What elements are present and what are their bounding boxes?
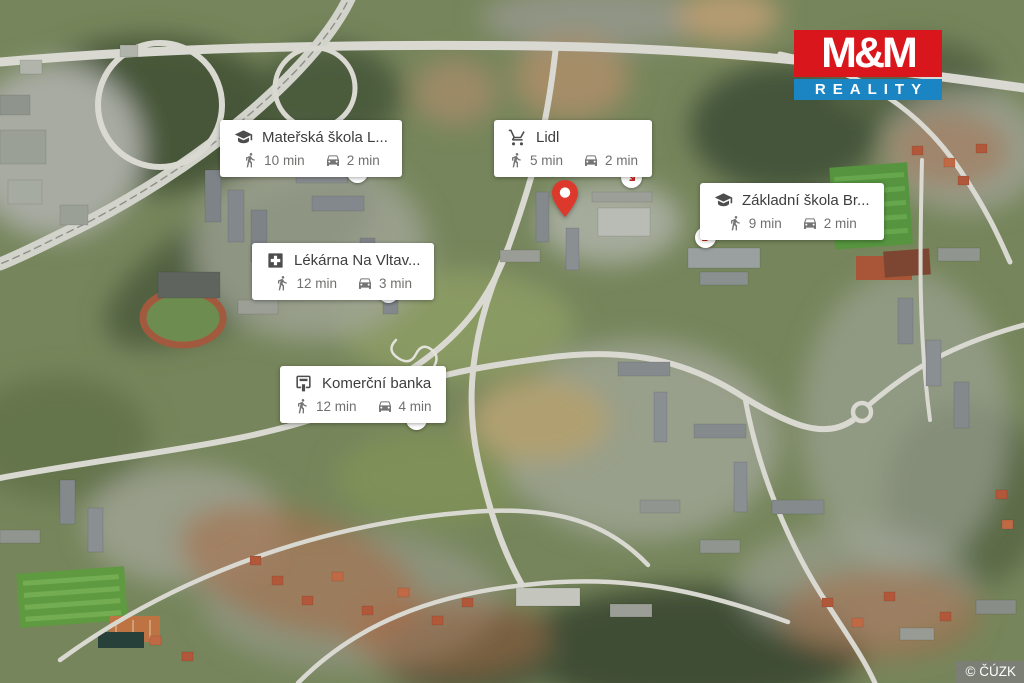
poi-title-row: Lékárna Na Vltav... [266, 251, 420, 270]
poi-callout-materska-skola[interactable]: Mateřská škola L... 10 min 2 min [220, 120, 402, 177]
car-icon [583, 152, 599, 168]
map-attribution: © ČÚZK [956, 661, 1024, 683]
graduation-cap-icon [234, 128, 253, 147]
walk-icon [242, 152, 258, 168]
walk-time: 9 min [749, 216, 782, 231]
walk-time: 5 min [530, 153, 563, 168]
car-icon [357, 275, 373, 291]
poi-label: Mateřská škola L... [262, 129, 388, 146]
location-pin[interactable] [551, 179, 579, 218]
walk-icon [294, 398, 310, 414]
graduation-cap-icon [714, 191, 733, 210]
poi-label: Lidl [536, 129, 559, 146]
poi-title-row: Komerční banka [294, 374, 432, 393]
poi-callout-zakladni-skola[interactable]: Základní škola Br... 9 min 2 min [700, 183, 884, 240]
poi-label: Lékárna Na Vltav... [294, 252, 420, 269]
drive-time: 2 min [347, 153, 380, 168]
satellite-map-image[interactable] [0, 0, 1024, 683]
drive-time: 2 min [824, 216, 857, 231]
poi-callout-lidl[interactable]: Lidl 5 min 2 min [494, 120, 652, 177]
car-icon [325, 152, 341, 168]
walk-icon [727, 215, 743, 231]
poi-title-row: Základní škola Br... [714, 191, 870, 210]
walk-time: 12 min [296, 276, 337, 291]
logo-reality-text: REALITY [794, 79, 942, 100]
mm-reality-logo: M&M REALITY [794, 30, 942, 100]
drive-time: 4 min [399, 399, 432, 414]
poi-label: Základní škola Br... [742, 192, 870, 209]
walk-time: 12 min [316, 399, 357, 414]
logo-mm-text: M&M [794, 30, 942, 77]
poi-label: Komerční banka [322, 375, 431, 392]
poi-times-row: 12 min 3 min [266, 275, 420, 291]
poi-times-row: 5 min 2 min [508, 152, 638, 168]
poi-times-row: 12 min 4 min [294, 398, 432, 414]
walk-icon [508, 152, 524, 168]
poi-callout-lekarna[interactable]: Lékárna Na Vltav... 12 min 3 min [252, 243, 434, 300]
poi-times-row: 9 min 2 min [714, 215, 870, 231]
car-icon [377, 398, 393, 414]
car-icon [802, 215, 818, 231]
poi-title-row: Mateřská škola L... [234, 128, 388, 147]
walk-time: 10 min [264, 153, 305, 168]
drive-time: 2 min [605, 153, 638, 168]
poi-times-row: 10 min 2 min [234, 152, 388, 168]
drive-time: 3 min [379, 276, 412, 291]
poi-title-row: Lidl [508, 128, 638, 147]
first-aid-cross-icon [266, 251, 285, 270]
walk-icon [274, 275, 290, 291]
atm-bank-icon [294, 374, 313, 393]
poi-callout-komercni-banka[interactable]: Komerční banka 12 min 4 min [280, 366, 446, 423]
shopping-cart-icon [508, 128, 527, 147]
